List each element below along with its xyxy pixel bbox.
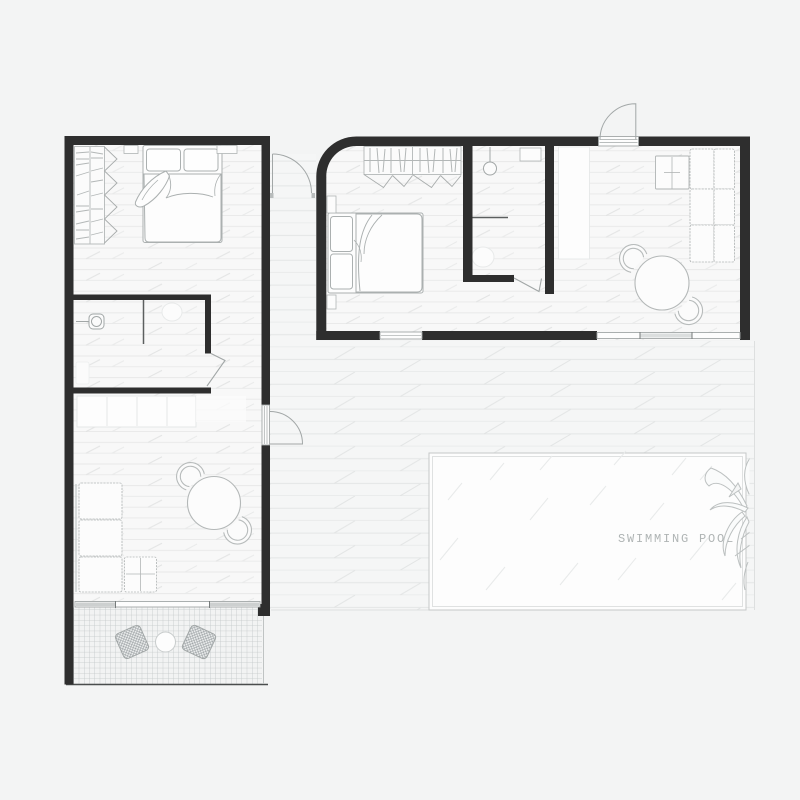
svg-text:SWIMMING POOL: SWIMMING POOL bbox=[618, 532, 735, 546]
